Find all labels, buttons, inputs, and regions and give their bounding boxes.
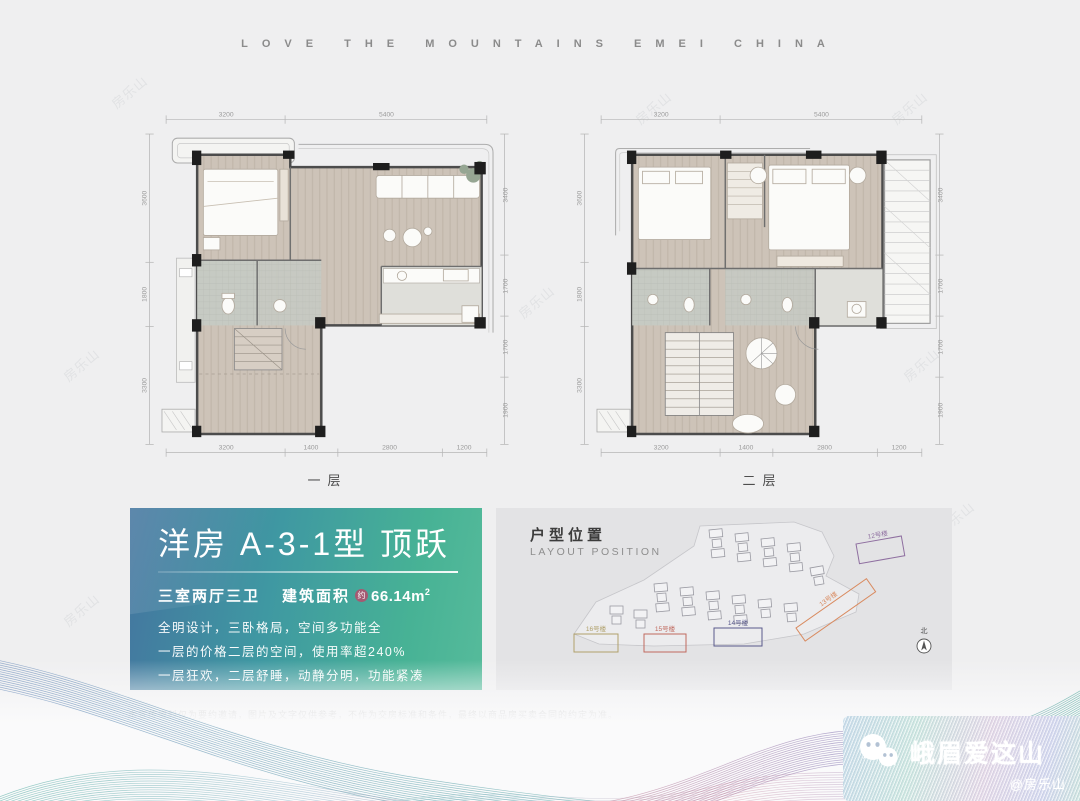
watermark: 房乐山 (59, 344, 103, 386)
dim-label: 1700 (938, 339, 945, 354)
brand-row: 峨眉爱这山 (857, 732, 1045, 772)
selling-points: 全明设计，三卧格局，空间多功能全 一层的价格二层的空间，使用率超240% 一层狂… (158, 616, 482, 690)
dim-label: 1200 (892, 445, 907, 452)
dim-label: 3600 (576, 190, 583, 205)
dim-label: 1200 (457, 445, 472, 452)
selling-point-line: 一层的价格二层的空间，使用率超240% (158, 640, 482, 664)
layout-position-panel: 12号楼 13号楼 14号楼 15号楼 16号楼 (496, 508, 952, 690)
panel-title-cn: 户型位置 (530, 524, 606, 545)
room-spec: 三室两厅三卫 (158, 585, 260, 606)
building-label: 15号楼 (655, 624, 676, 633)
dim-label: 3600 (141, 190, 148, 205)
dims-top-second: 3200 5400 (601, 111, 922, 123)
dim-label: 2800 (382, 445, 397, 452)
poster: LOVE THE MOUNTAINS EMEI CHINA 房乐山 房乐山 房乐… (0, 0, 1080, 801)
area-value: 66.14m2 (371, 587, 430, 605)
bath-areas (632, 269, 882, 326)
dim-label: 3300 (576, 378, 583, 393)
dim-label: 1400 (303, 445, 318, 452)
top-tagline: LOVE THE MOUNTAINS EMEI CHINA (0, 38, 1080, 50)
brand-name: 峨眉爱这山 (910, 734, 1045, 770)
first-floor-plan: 3200 5400 3200 1400 2800 1200 (135, 103, 520, 463)
compass-label: 北 (921, 627, 928, 635)
first-floor-label: 一层 (135, 470, 520, 489)
brand-handle: @房乐山 (1010, 774, 1066, 793)
dim-label: 1900 (503, 403, 510, 418)
disclaimer-text: 本宣传资料仅为要约邀请，图片及文字仅供参考，不作为交房标准和条件，最终以商品房买… (128, 708, 688, 721)
dim-label: 1800 (141, 287, 148, 302)
dim-label: 1400 (738, 445, 753, 452)
dim-label: 1700 (503, 278, 510, 293)
selling-point-line: 一层狂欢，二层舒睡，动静分明，功能紧凑 (158, 664, 482, 688)
dim-label: 1700 (938, 278, 945, 293)
second-floor-label: 二层 (570, 470, 955, 489)
compass-icon: 北 (917, 627, 931, 653)
dim-label: 2800 (817, 445, 832, 452)
building-12: 12号楼 (854, 526, 905, 564)
watermark: 房乐山 (514, 281, 558, 323)
dim-label: 3400 (938, 187, 945, 202)
dim-label: 3200 (219, 445, 234, 452)
unit-spec-card: 洋房 A-3-1型 顶跃 三室两厅三卫 建筑面积 约 66.14m2 全明设计，… (130, 508, 482, 690)
dim-label: 1700 (503, 339, 510, 354)
dim-label: 3200 (654, 111, 669, 118)
dim-label: 1900 (938, 403, 945, 418)
dim-label: 3200 (654, 445, 669, 452)
dim-label: 5400 (814, 111, 829, 118)
dim-label: 1800 (576, 287, 583, 302)
dim-label: 3300 (141, 378, 148, 393)
dims-left-first: 3600 1800 3300 (141, 134, 153, 444)
building-label: 14号楼 (728, 618, 749, 627)
second-floor-plan: 3200 5400 3200 1400 2800 1200 (570, 103, 955, 463)
building-label: 16号楼 (586, 624, 607, 633)
dims-right-first: 3400 1700 1700 1900 (500, 134, 509, 444)
dim-label: 3400 (503, 187, 510, 202)
spec-row: 三室两厅三卫 建筑面积 约 66.14m2 (158, 585, 482, 606)
approx-badge: 约 (355, 589, 368, 602)
footer-logo-patch: 峨眉爱这山 @房乐山 (843, 716, 1080, 801)
dims-bottom-first: 3200 1400 2800 1200 (166, 445, 487, 457)
unit-title: 洋房 A-3-1型 顶跃 (158, 524, 482, 564)
selling-point-line: 宽屏露台客厅，阳光主卧套房，采光好舒服住 (158, 688, 482, 690)
wechat-icon (857, 732, 901, 772)
dim-label: 5400 (379, 111, 394, 118)
dims-bottom-second: 3200 1400 2800 1200 (601, 445, 922, 457)
dim-label: 3200 (219, 111, 234, 118)
selling-point-line: 全明设计，三卧格局，空间多功能全 (158, 616, 482, 640)
panel-title-en: LAYOUT POSITION (530, 546, 662, 558)
dims-left-second: 3600 1800 3300 (576, 134, 588, 444)
area-label: 建筑面积 (282, 585, 350, 606)
dims-top-first: 3200 5400 (166, 111, 487, 123)
watermark: 房乐山 (59, 589, 103, 631)
divider (158, 571, 458, 573)
